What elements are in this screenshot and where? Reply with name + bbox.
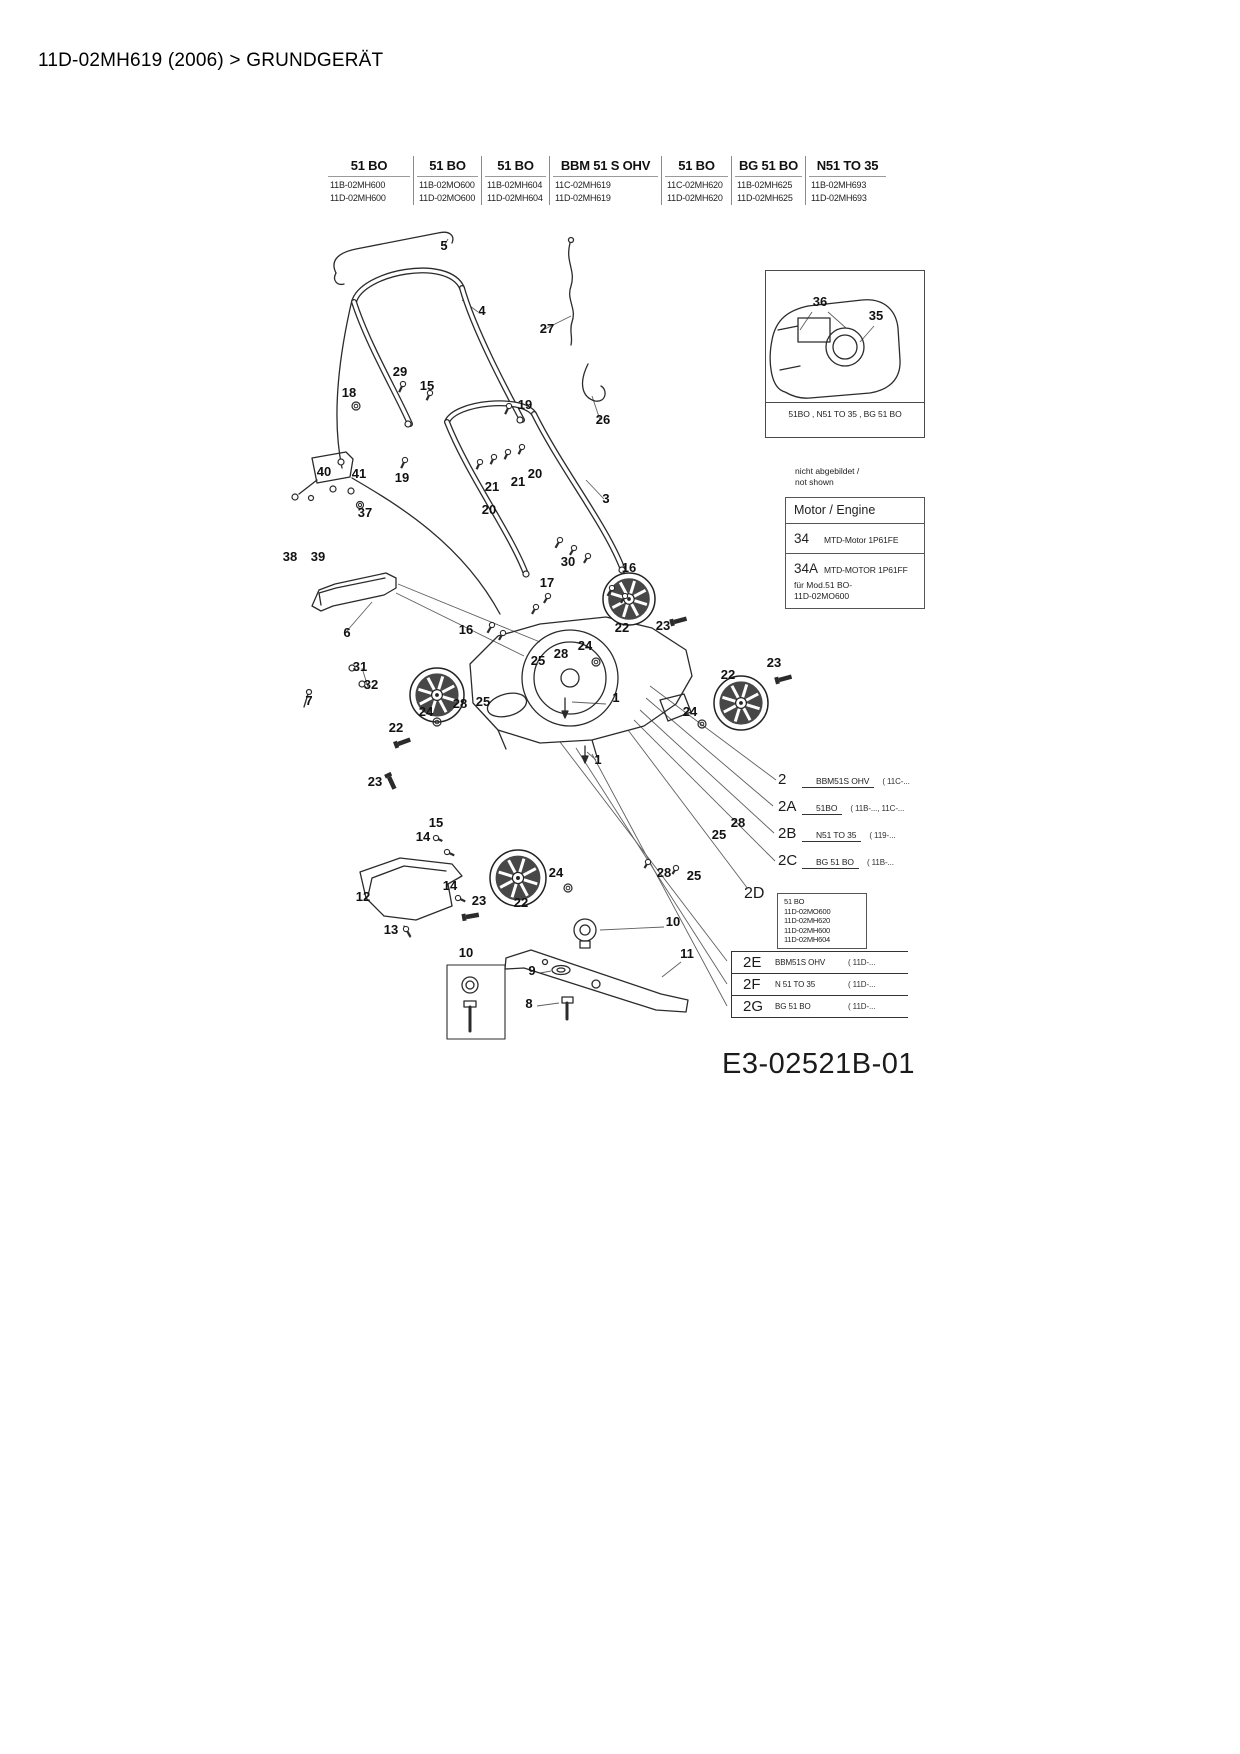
- variant-ref: 2E: [732, 954, 775, 971]
- engine-table: Motor / Engine 34MTD-Motor 1P61FE34AMTD-…: [785, 497, 925, 609]
- model-number: 11B-02MH600: [328, 177, 410, 190]
- variant-2d-line: 11D-02MH620: [784, 916, 862, 926]
- variant-name: N 51 TO 35: [775, 980, 848, 989]
- variant-row: 2BBM51S OHV( 11C-...: [778, 771, 910, 790]
- part-number-label: 5: [440, 238, 447, 253]
- part-number-label: 16: [622, 560, 636, 575]
- part-number-label: 25: [531, 653, 545, 668]
- handle-tubes: [354, 270, 623, 574]
- variant-box-2d: 51 BO11D-02MO60011D-02MH62011D-02MH60011…: [777, 893, 867, 949]
- engine-name: MTD-Motor 1P61FE: [824, 535, 898, 545]
- model-number: 11D-02MO600: [417, 190, 478, 203]
- part-number-label: 25: [712, 827, 726, 842]
- part-number-label: 22: [615, 620, 629, 635]
- model-number: 11D-02MH604: [485, 190, 546, 203]
- model-number: 11D-02MH600: [328, 190, 410, 203]
- model-number: 11D-02MH619: [553, 190, 658, 203]
- part-number-label: 23: [472, 893, 486, 908]
- model-column: 51 BO11B-02MO60011D-02MO600: [413, 156, 481, 205]
- exploded-view-diagram: 5427291518192619404120212120337383930171…: [0, 0, 1240, 1754]
- model-number: 11D-02MH620: [665, 190, 728, 203]
- wheel: [714, 676, 768, 730]
- part-number-label: 25: [476, 694, 490, 709]
- model-column-header: BBM 51 S OHV: [553, 156, 658, 177]
- spring-hook: [583, 364, 606, 401]
- part-number-label: 28: [731, 815, 745, 830]
- part-number-label: 23: [767, 655, 781, 670]
- variant-name: BG 51 BO: [775, 1002, 848, 1011]
- engine-table-header: Motor / Engine: [786, 498, 924, 524]
- wheel: [490, 850, 546, 906]
- variant-ref: 2: [778, 771, 802, 788]
- variant-row: 2CBG 51 BO( 11B-...: [778, 852, 910, 871]
- part-number-label: 23: [656, 618, 670, 633]
- model-column-header: N51 TO 35: [809, 156, 886, 177]
- part-number-label: 25: [687, 868, 701, 883]
- variant-models: ( 119-...: [869, 831, 895, 840]
- model-column-header: 51 BO: [665, 156, 728, 177]
- variant-legend-rows: 2BBM51S OHV( 11C-...2A51BO( 11B-..., 11C…: [778, 771, 910, 879]
- part-number-label: 9: [528, 963, 535, 978]
- variant-table-row: 2EBBM51S OHV( 11D-...: [732, 951, 908, 973]
- model-column-header: 51 BO: [328, 156, 410, 177]
- part-number-label: 20: [482, 502, 496, 517]
- wheel: [410, 668, 464, 722]
- variant-2d-line: 11D-02MH600: [784, 926, 862, 936]
- model-column-header: BG 51 BO: [735, 156, 802, 177]
- variant-name: BBM51S OHV: [775, 958, 848, 967]
- part-number-label: 10: [666, 914, 680, 929]
- part-number-label: 28: [657, 865, 671, 880]
- model-number: 11B-02MH604: [485, 177, 546, 190]
- part-number-label: 14: [416, 829, 431, 844]
- model-number: 11D-02MH693: [809, 190, 886, 203]
- variant-2d-line: 11D-02MO600: [784, 907, 862, 917]
- part-number-label: 17: [540, 575, 554, 590]
- part-number-label: 20: [528, 466, 542, 481]
- part-number-label: 38: [283, 549, 297, 564]
- part-number-label: 19: [518, 397, 532, 412]
- variant-models: ( 11C-...: [882, 777, 909, 786]
- starter-cable: [569, 243, 574, 345]
- part-number-label: 31: [353, 659, 367, 674]
- part-number-label: 22: [389, 720, 403, 735]
- part-number-label: 1: [612, 690, 619, 705]
- model-column-header: 51 BO: [485, 156, 546, 177]
- model-column-header: 51 BO: [417, 156, 478, 177]
- part-number-label: 24: [549, 865, 564, 880]
- wheel: [603, 573, 655, 625]
- engine-ref: 34: [794, 531, 824, 546]
- part-number-label: 28: [554, 646, 568, 661]
- blade-adapter: [574, 919, 596, 941]
- not-shown-note: nicht abgebildet / not shown: [795, 466, 859, 488]
- part-number-label: 4: [478, 303, 486, 318]
- engine-table-row: 34AMTD-MOTOR 1P61FFfür Mod.51 BO-11D-02M…: [786, 553, 924, 608]
- variant-models: ( 11D-...: [848, 1002, 875, 1011]
- parts-catalog-page: 11D-02MH619 (2006) > GRUNDGERÄT 51 BO11B…: [0, 0, 1240, 1754]
- engine-picture-box: 51BO , N51 TO 35 , BG 51 BO: [765, 270, 925, 438]
- part-number-label: 24: [419, 704, 434, 719]
- part-number-label: 22: [514, 895, 528, 910]
- model-column: BBM 51 S OHV11C-02MH61911D-02MH619: [549, 156, 661, 205]
- variant-name: BG 51 BO: [802, 857, 859, 869]
- variant-name: N51 TO 35: [802, 830, 861, 842]
- part-number-label: 23: [368, 774, 382, 789]
- model-column: 51 BO11B-02MH60411D-02MH604: [481, 156, 549, 205]
- small-hardware: [292, 381, 792, 936]
- model-number: 11C-02MH619: [553, 177, 658, 190]
- variant-ref: 2G: [732, 998, 775, 1015]
- variant-row: 2A51BO( 11B-..., 11C-...: [778, 798, 910, 817]
- part-number-label: 15: [429, 815, 443, 830]
- part-number-label: 24: [683, 704, 698, 719]
- variant-ref: 2B: [778, 825, 802, 842]
- part-number-label: 10: [459, 945, 473, 960]
- engine-note-line: 11D-02MO600: [794, 591, 918, 602]
- engine-ref: 34A: [794, 561, 824, 576]
- variant-name: 51BO: [802, 803, 842, 815]
- model-column: N51 TO 3511B-02MH69311D-02MH693: [805, 156, 889, 205]
- variant-ref: 2C: [778, 852, 802, 869]
- variant-2d-line: 51 BO: [784, 897, 862, 907]
- part-number-label: 6: [343, 625, 350, 640]
- part-number-label: 3: [602, 491, 609, 506]
- part-number-label: 14: [443, 878, 458, 893]
- variant-table-row: 2GBG 51 BO( 11D-...: [732, 995, 908, 1018]
- variant-models: ( 11B-..., 11C-...: [850, 804, 904, 813]
- part-number-label: 37: [358, 505, 372, 520]
- part-number-label: 29: [393, 364, 407, 379]
- part-number-label: 28: [453, 696, 467, 711]
- variant-table-row: 2FN 51 TO 35( 11D-...: [732, 973, 908, 995]
- model-number: 11C-02MH620: [665, 177, 728, 190]
- part-number-label: 8: [525, 996, 532, 1011]
- model-column: 51 BO11B-02MH60011D-02MH600: [325, 156, 413, 205]
- part-number-label: 21: [485, 479, 499, 494]
- part-number-label: 24: [578, 638, 593, 653]
- engine-note-line: für Mod.51 BO-: [794, 580, 918, 591]
- engine-box-caption: 51BO , N51 TO 35 , BG 51 BO: [766, 402, 924, 437]
- hardware-box: [447, 965, 505, 1039]
- part-number-label: 13: [384, 922, 398, 937]
- variant-row: 2BN51 TO 35( 119-...: [778, 825, 910, 844]
- part-number-label: 16: [459, 622, 473, 637]
- variant-models: ( 11D-...: [848, 958, 875, 967]
- variant-2d-line: 11D-02MH604: [784, 935, 862, 945]
- bail-handle: [334, 232, 453, 273]
- variant-name: BBM51S OHV: [802, 776, 874, 788]
- deflector: [360, 858, 462, 920]
- not-shown-line2: not shown: [795, 477, 859, 488]
- blade: [505, 950, 688, 1012]
- engine-name: MTD-MOTOR 1P61FF: [824, 565, 908, 575]
- part-number-label: 22: [721, 667, 735, 682]
- variant-ref-2d: 2D: [744, 885, 764, 903]
- engine-table-row: 34MTD-Motor 1P61FE: [786, 524, 924, 553]
- part-number-label: 7: [305, 693, 312, 708]
- part-number-label: 15: [420, 378, 434, 393]
- wheels: [410, 573, 768, 906]
- part-number-label: 30: [561, 554, 575, 569]
- part-number-label: 41: [352, 466, 366, 481]
- model-number: 11B-02MH625: [735, 177, 802, 190]
- model-number: 11B-02MH693: [809, 177, 886, 190]
- model-table: 51 BO11B-02MH60011D-02MH60051 BO11B-02MO…: [325, 156, 889, 205]
- drawing-number: E3-02521B-01: [722, 1048, 915, 1081]
- variant-models: ( 11D-...: [848, 980, 875, 989]
- part-number-label: 39: [311, 549, 325, 564]
- page-title: 11D-02MH619 (2006) > GRUNDGERÄT: [38, 50, 383, 72]
- deck-housing: [470, 617, 692, 743]
- part-number-label: 12: [356, 889, 370, 904]
- part-number-label: 1: [594, 752, 601, 767]
- model-number: 11D-02MH625: [735, 190, 802, 203]
- part-number-label: 27: [540, 321, 554, 336]
- model-column: BG 51 BO11B-02MH62511D-02MH625: [731, 156, 805, 205]
- part-number-label: 21: [511, 474, 525, 489]
- variant-table-2e-2g: 2EBBM51S OHV( 11D-...2FN 51 TO 35( 11D-.…: [731, 951, 908, 1018]
- part-number-label: 32: [364, 677, 378, 692]
- variant-ref: 2A: [778, 798, 802, 815]
- not-shown-line1: nicht abgebildet /: [795, 466, 859, 477]
- part-number-label: 40: [317, 464, 331, 479]
- part-number-label: 18: [342, 385, 356, 400]
- part-number-label: 26: [596, 412, 610, 427]
- model-number: 11B-02MO600: [417, 177, 478, 190]
- variant-ref: 2F: [732, 976, 775, 993]
- model-column: 51 BO11C-02MH62011D-02MH620: [661, 156, 731, 205]
- part-number-label: 11: [680, 946, 694, 961]
- engine-note: für Mod.51 BO-11D-02MO600: [794, 580, 918, 601]
- front-bumper: [312, 573, 396, 611]
- part-number-label: 19: [395, 470, 409, 485]
- stop-control: [312, 452, 353, 483]
- variant-models: ( 11B-...: [867, 858, 894, 867]
